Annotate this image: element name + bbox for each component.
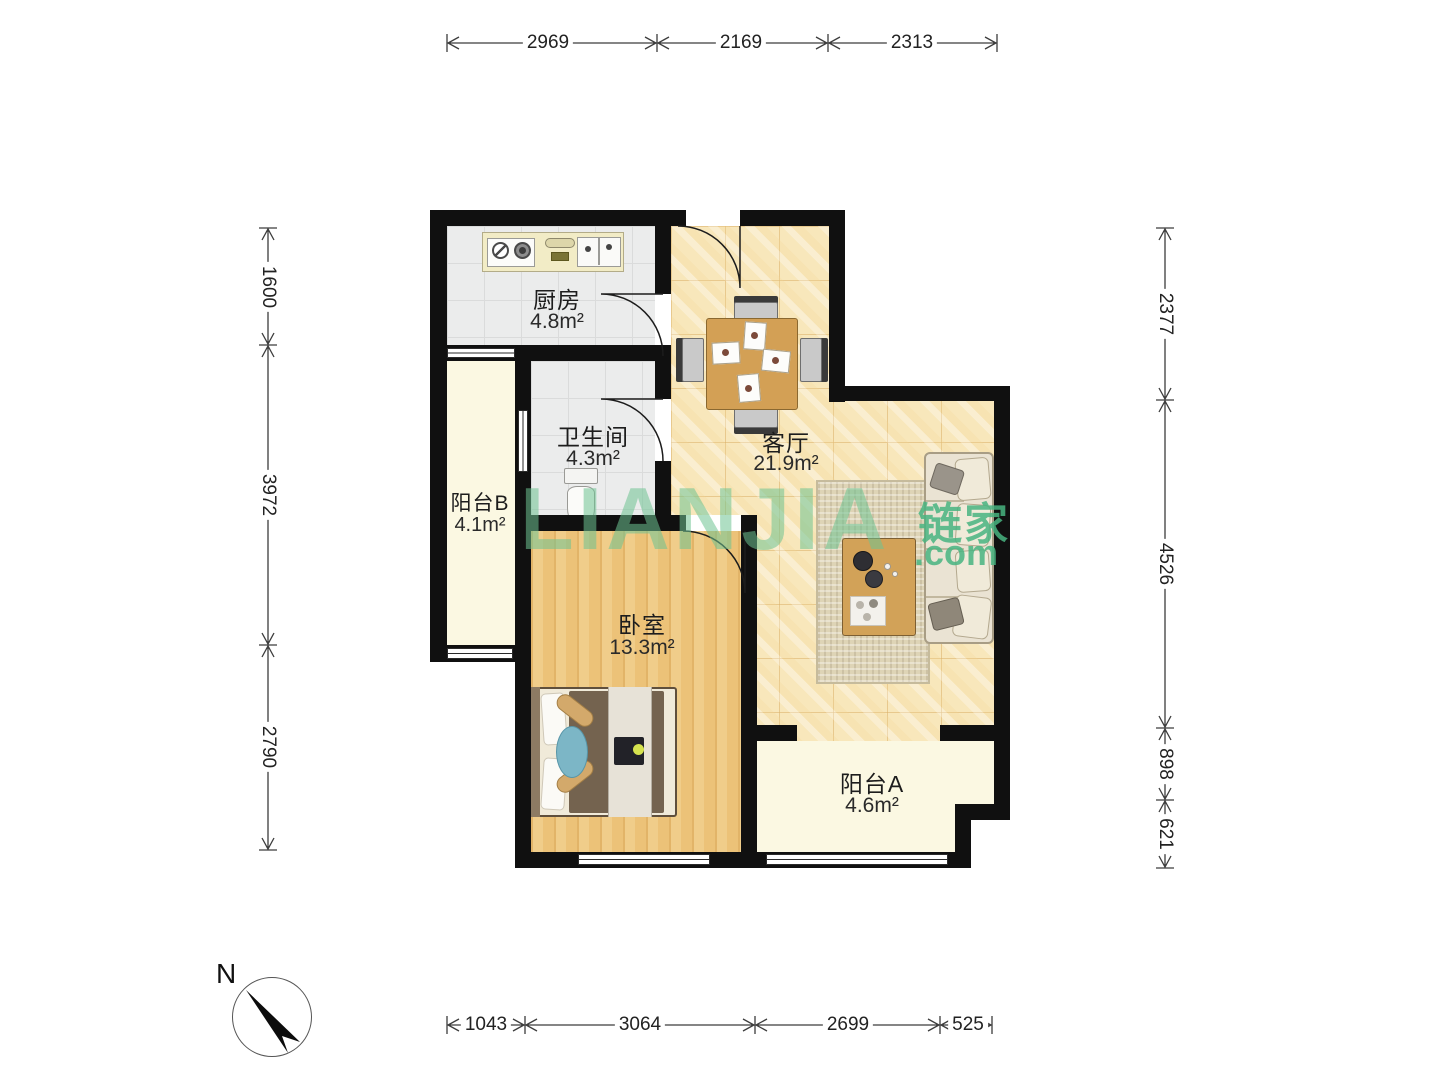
watermark-logo: LIANJIA: [520, 468, 940, 570]
kitchen-area: 4.8m²: [530, 310, 584, 334]
dim-bottom-line: [447, 1016, 992, 1034]
dim-right-3: 898: [1154, 744, 1176, 784]
compass-north-label: N: [216, 958, 236, 990]
floor-plan-canvas: LIANJIA 链家 .com 厨房 4.8m² 卫生间 4.3m² 客厅 21…: [0, 0, 1440, 1080]
dim-right-1: 2377: [1154, 289, 1176, 339]
compass-circle: [232, 977, 312, 1057]
balcony-b-label: 阳台B: [450, 487, 509, 517]
bedroom-label: 卧室: [618, 606, 666, 640]
watermark-domain: .com: [914, 532, 998, 574]
bathroom-area: 4.3m²: [566, 447, 620, 471]
dim-top-3: 2313: [887, 32, 937, 54]
dim-right-4: 621: [1154, 814, 1176, 854]
kitchen-door-swing: [601, 294, 663, 356]
dim-left-2: 3972: [257, 470, 279, 520]
balcony-a-area: 4.6m²: [845, 794, 899, 818]
dim-right-2: 4526: [1154, 539, 1176, 589]
entrance-door-swing: [678, 226, 740, 288]
balcony-b-area: 4.1m²: [454, 514, 505, 537]
living-room-area: 21.9m²: [753, 452, 818, 476]
dim-bottom-3: 2699: [823, 1014, 873, 1036]
bedroom-area: 13.3m²: [609, 636, 674, 660]
dim-top-1: 2969: [523, 32, 573, 54]
dim-left-1: 1600: [257, 262, 279, 312]
dim-bottom-4: 525: [948, 1014, 988, 1036]
dim-bottom-1: 1043: [461, 1014, 511, 1036]
dim-bottom-2: 3064: [615, 1014, 665, 1036]
dim-left-3: 2790: [257, 722, 279, 772]
dim-top-2: 2169: [716, 32, 766, 54]
